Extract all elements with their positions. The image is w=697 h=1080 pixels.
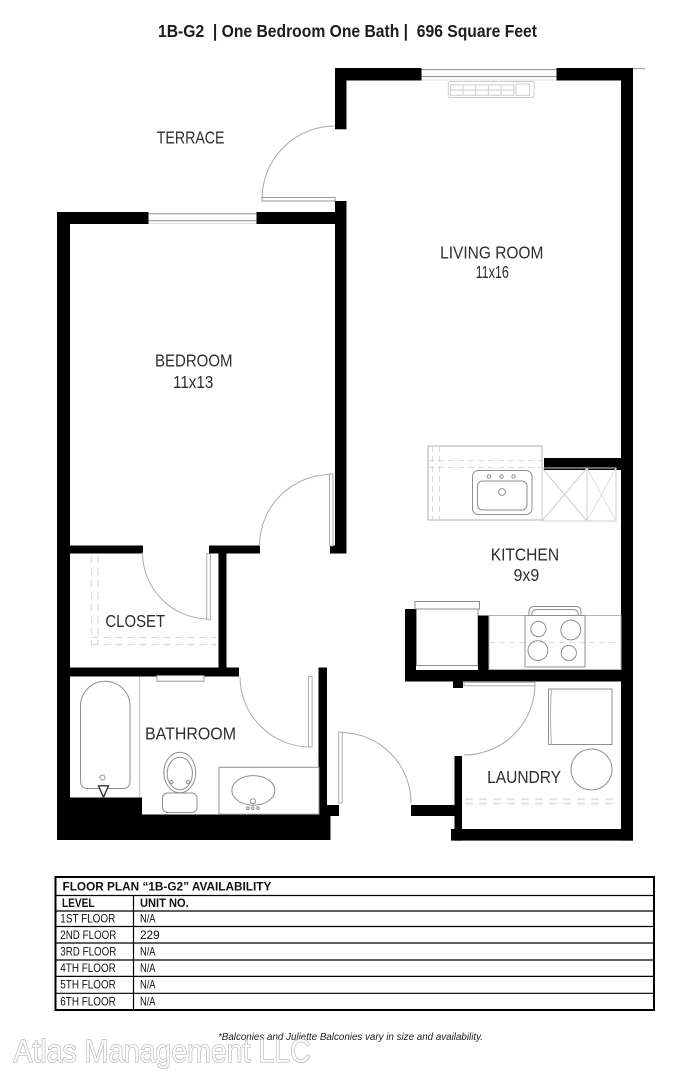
svg-text:Atlas Management LLC: Atlas Management LLC [14, 1033, 311, 1069]
svg-text:N/A: N/A [140, 978, 156, 992]
svg-text:1ST FLOOR: 1ST FLOOR [60, 912, 115, 926]
svg-text:N/A: N/A [140, 994, 156, 1008]
svg-text:9x9: 9x9 [514, 565, 540, 585]
svg-text:6TH FLOOR: 6TH FLOOR [60, 994, 116, 1008]
svg-text:N/A: N/A [140, 912, 156, 926]
svg-text:11x16: 11x16 [476, 262, 509, 282]
svg-text:N/A: N/A [140, 945, 156, 959]
svg-text:FLOOR PLAN “1B-G2” AVAILABILIT: FLOOR PLAN “1B-G2” AVAILABILITY [63, 880, 272, 894]
svg-text:BEDROOM: BEDROOM [155, 350, 233, 370]
svg-text:2ND FLOOR: 2ND FLOOR [60, 928, 116, 942]
svg-text:5TH FLOOR: 5TH FLOOR [60, 978, 116, 992]
svg-text:3RD FLOOR: 3RD FLOOR [60, 945, 116, 959]
svg-text:LEVEL: LEVEL [62, 896, 95, 910]
svg-text:KITCHEN: KITCHEN [491, 545, 559, 565]
svg-text:N/A: N/A [140, 961, 156, 975]
svg-text:TERRACE: TERRACE [157, 128, 225, 148]
svg-text:CLOSET: CLOSET [105, 611, 165, 631]
svg-text:LIVING ROOM: LIVING ROOM [440, 243, 543, 263]
svg-text:11x13: 11x13 [173, 372, 213, 392]
svg-text:4TH FLOOR: 4TH FLOOR [60, 961, 116, 975]
svg-text:1B-G2 | One Bedroom One Bath: 1B-G2 | One Bedroom One Bath | 696 Squar… [158, 21, 537, 41]
svg-text:UNIT NO.: UNIT NO. [140, 896, 189, 910]
svg-text:BATHROOM: BATHROOM [145, 723, 236, 743]
svg-text:229: 229 [140, 928, 160, 942]
svg-text:LAUNDRY: LAUNDRY [487, 767, 561, 787]
